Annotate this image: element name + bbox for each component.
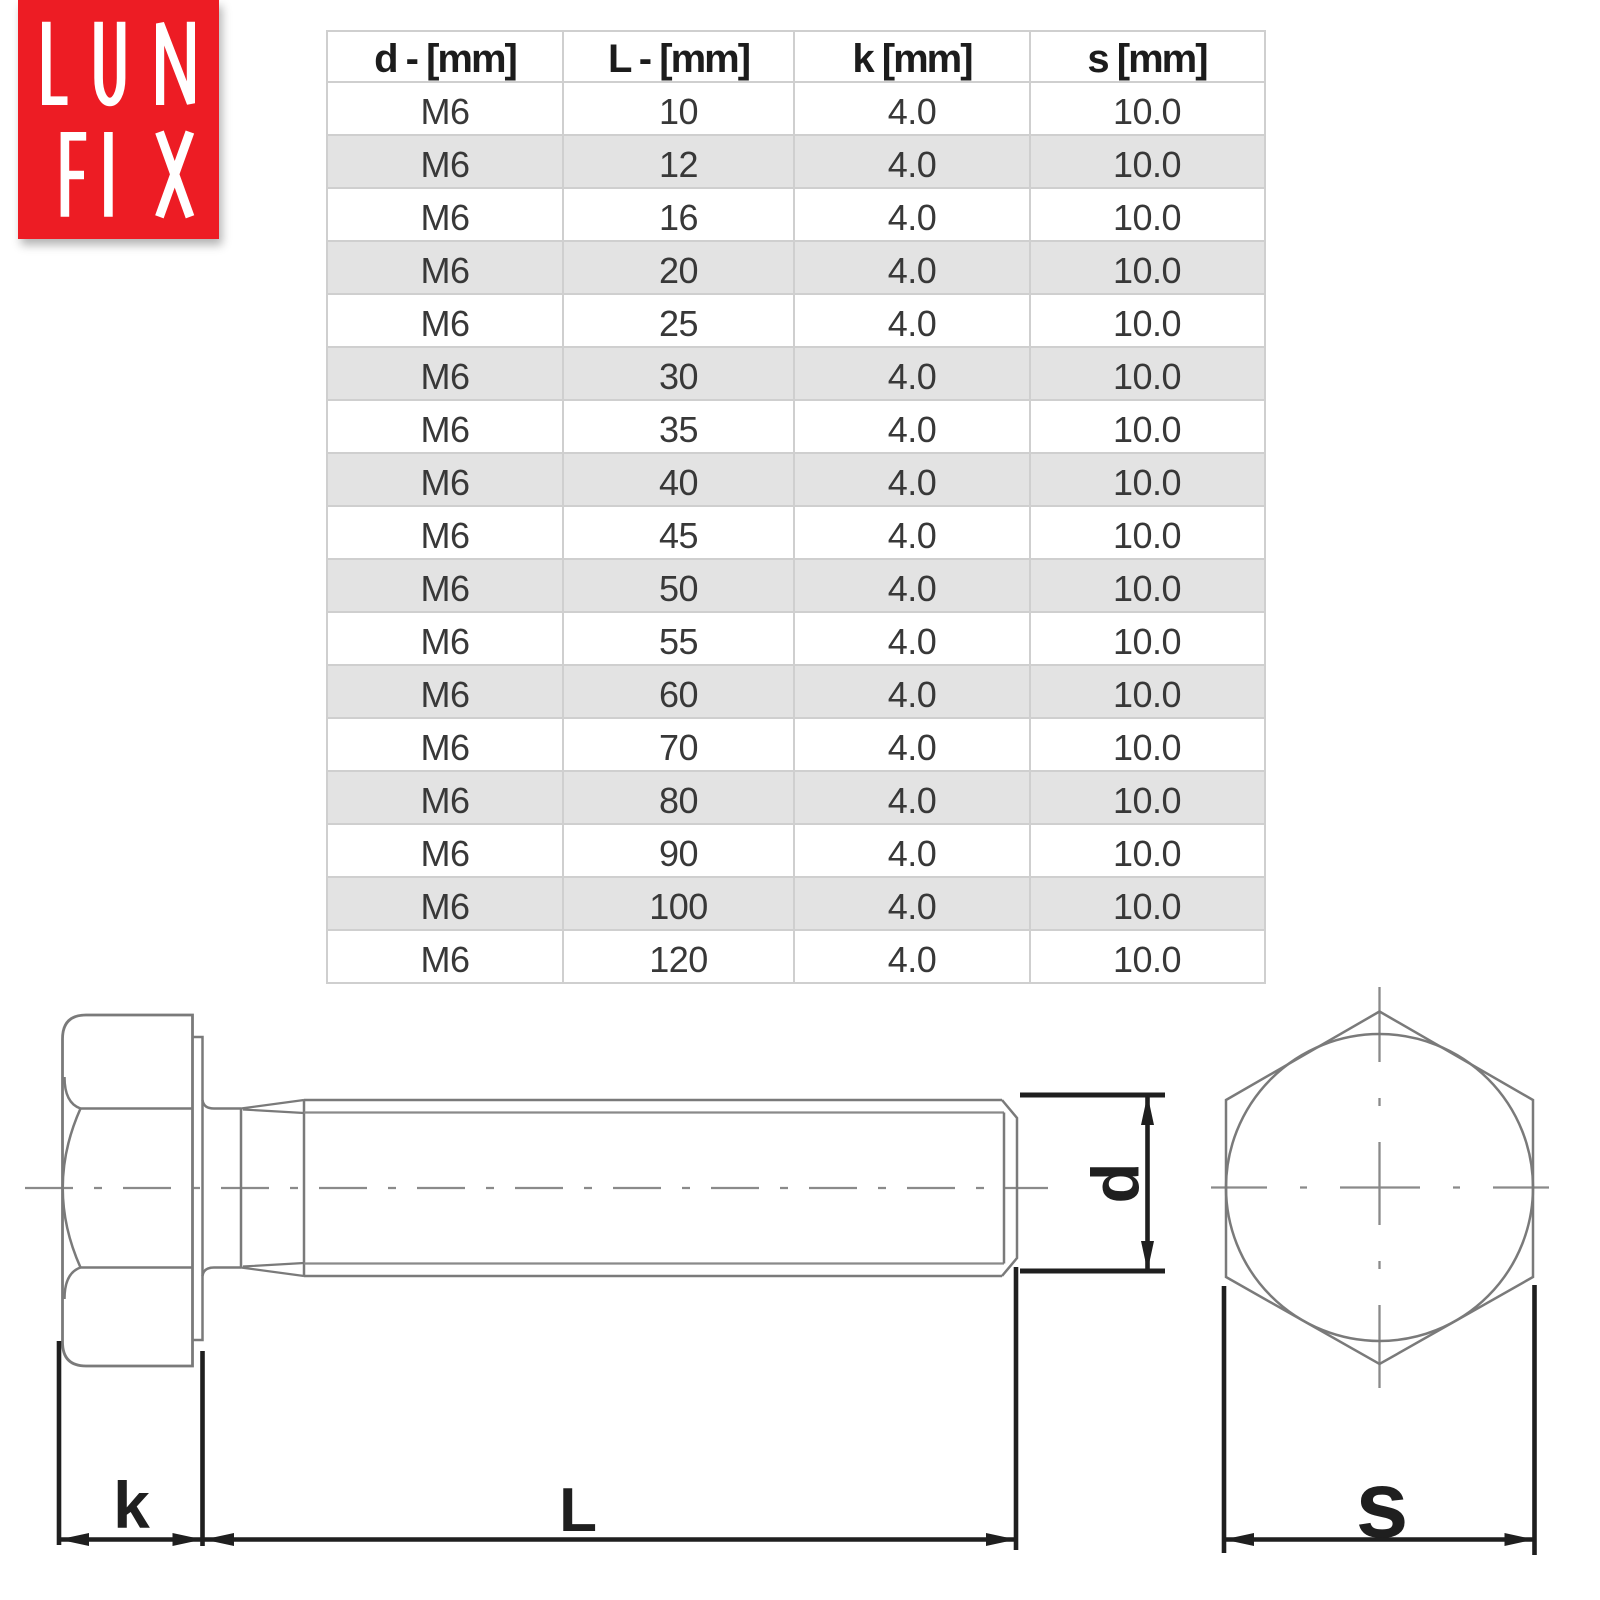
svg-text:d: d <box>1079 1163 1154 1204</box>
svg-text:L: L <box>559 1476 597 1545</box>
svg-text:k: k <box>113 1468 150 1542</box>
svg-text:s: s <box>1356 1452 1409 1558</box>
